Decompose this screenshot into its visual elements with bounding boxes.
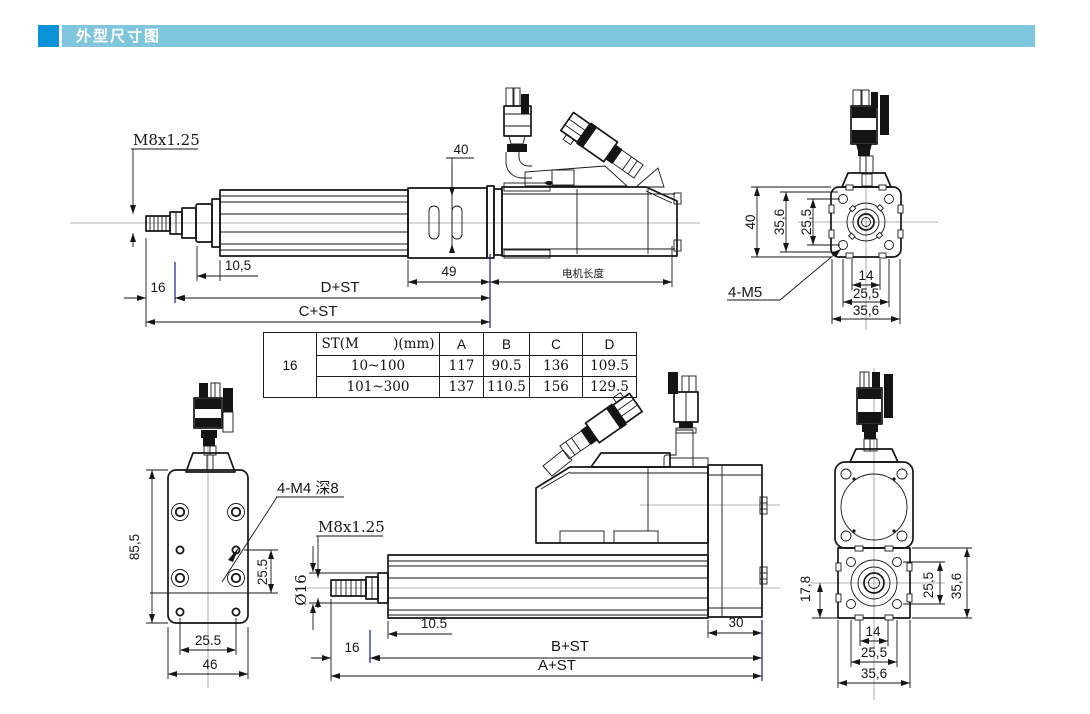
- table-row: 101~300 137 110.5 156 129.5: [264, 377, 637, 398]
- dim-label-25-5-left: 25,5: [799, 209, 814, 235]
- dim-label-10-5-top: 10,5: [225, 258, 251, 273]
- dim-label-d-st: D+ST: [321, 279, 360, 296]
- dim-label-thread-bottom: M8x1.25: [318, 518, 385, 536]
- spec-stroke-range: 101~300: [317, 377, 440, 398]
- dim-label-c-st: C+ST: [299, 303, 338, 320]
- spec-table: 16 ST(M )(mm) A B C D 10~100 117 90.5 13…: [263, 332, 637, 398]
- dim-label-25-5-right-end: 25,5: [921, 572, 936, 598]
- spec-value: 109.5: [583, 356, 637, 377]
- end-view-connector-top: [851, 90, 889, 173]
- folded-motor-connector-angled: [555, 389, 643, 463]
- top-end-view: 40 35,6 25,5 14 25,5 35,6 4-M5: [727, 90, 938, 330]
- dim-label-35-6-right-end: 35,6: [949, 573, 964, 599]
- dim-label-30: 30: [728, 615, 743, 630]
- motor-cable-connector-angled: [557, 111, 645, 185]
- dim-label-17-8: 17,8: [798, 576, 813, 602]
- dim-label-thread-top: M8x1.25: [133, 131, 200, 149]
- dim-label-25-5-bottom-folded: 25,5: [861, 645, 887, 660]
- spec-value: 110.5: [484, 377, 530, 398]
- dim-label-35-6-left: 35,6: [772, 209, 787, 235]
- page: 外型尺寸图: [0, 0, 1090, 714]
- dim-label-motor-length: 电机长度: [562, 267, 604, 280]
- spec-value: 129.5: [583, 377, 637, 398]
- dim-label-16-bottom: 16: [344, 640, 359, 655]
- dim-label-b-st: B+ST: [551, 638, 589, 655]
- table-row: 10~100 117 90.5 136 109.5: [264, 356, 637, 377]
- dim-label-dia-16: Ø16: [292, 574, 310, 605]
- top-view-connector: [194, 383, 233, 455]
- dim-label-4-m5: 4-M5: [728, 284, 762, 301]
- dim-label-14-folded: 14: [865, 624, 881, 639]
- motor-cable-connector-top: [504, 88, 627, 186]
- dim-label-46: 46: [202, 657, 217, 672]
- dim-label-25-5-bottom-top: 25.5: [195, 633, 221, 648]
- bottom-side-view: M8x1.25 Ø16 10.5 16 B+ST A+ST 30: [292, 372, 780, 681]
- spec-value: 90.5: [484, 356, 530, 377]
- spec-col-d: D: [583, 333, 637, 356]
- dim-label-40: 40: [453, 142, 468, 157]
- dim-label-4-m4: 4-M4 深8: [277, 480, 339, 497]
- spec-value: 137: [440, 377, 484, 398]
- spec-col-b: B: [484, 333, 530, 356]
- dim-label-10-5-bottom: 10.5: [421, 616, 447, 631]
- spec-col-stroke: ST(M )(mm): [317, 333, 440, 356]
- bottom-top-view: 4-M4 深8 85,5 25.5 25.5 46: [127, 383, 344, 688]
- dim-label-35-6-bottom-end: 35,6: [853, 303, 879, 318]
- spec-col-c: C: [530, 333, 583, 356]
- dim-label-25-5-bottom-end: 25,5: [853, 286, 879, 301]
- dim-label-49: 49: [441, 264, 456, 279]
- spec-value: 136: [530, 356, 583, 377]
- dim-label-14-end: 14: [858, 268, 874, 283]
- spec-value: 156: [530, 377, 583, 398]
- folded-end-connector: [857, 372, 893, 451]
- dim-label-40-end: 40: [743, 214, 758, 229]
- dim-label-35-6-bottom-folded: 35,6: [861, 666, 887, 681]
- spec-stroke-range: 10~100: [317, 356, 440, 377]
- dim-label-85-5: 85,5: [127, 534, 142, 560]
- top-side-view: M8x1.25 40 10,5 49 电机长度 16 D+ST: [70, 88, 700, 328]
- dim-label-a-st: A+ST: [538, 657, 576, 674]
- spec-col-a: A: [440, 333, 484, 356]
- dim-label-16-top: 16: [150, 280, 165, 295]
- bottom-end-view: 17,8 25,5 35,6 14 25,5 35,6: [798, 368, 972, 700]
- spec-size-label: 16: [264, 333, 317, 398]
- spec-value: 117: [440, 356, 484, 377]
- dim-label-25-5-right-top: 25.5: [255, 559, 270, 585]
